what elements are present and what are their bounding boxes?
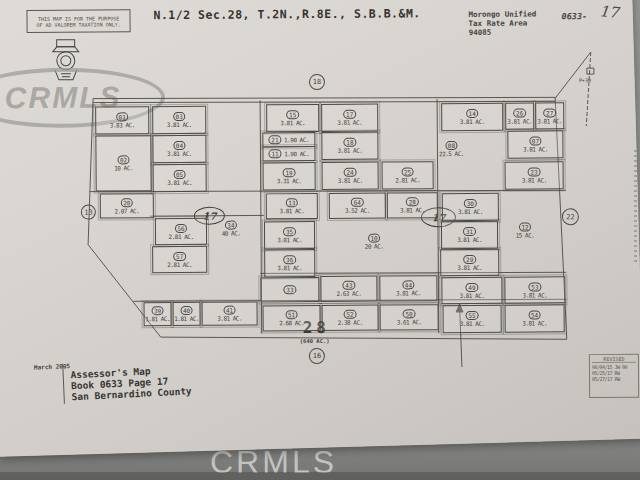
- parcel-30: 303.81 AC.: [442, 193, 499, 221]
- parcel-acreage: 2.63 AC.: [336, 291, 361, 297]
- parcel-number: 21: [269, 135, 281, 144]
- parcel-acreage: 22.5 AC.: [439, 151, 464, 157]
- photo-of-assessor-map: { "watermark": { "text": "CRMLS" }, "hea…: [0, 0, 640, 480]
- parcel-acreage: 3.81 AC.: [400, 207, 425, 213]
- parcel-23: 233.81 AC.: [505, 161, 564, 189]
- parcel-17: 173.81 AC.: [321, 104, 378, 132]
- parcel-number: 52: [344, 310, 356, 319]
- parcel-acreage: 3.31 AC.: [277, 178, 302, 184]
- parcel-51: 512.68 AC.: [263, 305, 321, 331]
- parcel-acreage: 1.90 AC.: [284, 137, 309, 143]
- parcel-54: 543.81 AC.: [505, 304, 565, 332]
- parcel-10: 1020 AC.: [352, 231, 396, 251]
- parcel-39: 391.81 AC.: [143, 302, 171, 326]
- parcel-acreage: 3.81 AC.: [523, 146, 548, 152]
- parcel-acreage: 2.38 AC.: [338, 320, 363, 326]
- parcel-56: 562.81 AC.: [155, 218, 207, 245]
- parcel-number: 10: [368, 234, 380, 243]
- parcel-number: 43: [343, 281, 355, 290]
- parcel-acreage: 1.81 AC.: [145, 316, 170, 322]
- parcel-26: 263.81 AC.: [505, 103, 534, 130]
- parcel-03: 033.81 AC.: [152, 106, 206, 134]
- parcel-acreage: 3.81 AC.: [460, 321, 485, 327]
- parcel-acreage: 1.81 AC.: [174, 316, 199, 322]
- parcel-acreage: 3.81 AC.: [279, 208, 304, 214]
- parcel-41: 413.81 AC.: [201, 301, 257, 325]
- parcel-acreage: 20 AC.: [365, 244, 384, 250]
- parcel-number: 44: [402, 280, 414, 289]
- parcel-64: 643.52 AC.: [329, 193, 386, 219]
- parcel-acreage: 3.81 AC.: [277, 265, 302, 271]
- parcel-number: 03: [173, 112, 185, 121]
- parcel-07: 073.81 AC.: [507, 130, 563, 158]
- parcel-acreage: 3.81 AC.: [396, 290, 421, 296]
- parcel-04: 043.81 AC.: [152, 135, 206, 163]
- parcel-12: 1215 AC.: [503, 220, 547, 240]
- parcel-08: 0822.5 AC.: [429, 139, 473, 159]
- parcel-36: 363.81 AC.: [264, 249, 315, 277]
- parcel-number: 24: [344, 168, 356, 177]
- parcel-acreage: 10 AC.: [114, 165, 133, 171]
- parcel-number: 18: [344, 138, 356, 147]
- parcel-number: 51: [285, 310, 297, 319]
- parcel-11: 111.90 AC.: [262, 146, 315, 161]
- parcel-number: 12: [519, 223, 531, 232]
- parcel-acreage: 2.68 AC.: [279, 320, 304, 326]
- parcel-number: 26: [514, 108, 526, 117]
- parcel-acreage: 3.81 AC.: [537, 118, 562, 124]
- parcel-25: 252.81 AC.: [382, 161, 434, 189]
- parcel-number: 13: [286, 198, 298, 207]
- parcel-acreage: 3.81 AC.: [458, 209, 483, 215]
- parcel-28: 283.81 AC.: [387, 192, 438, 218]
- parcel-number: 31: [463, 227, 475, 236]
- parcel-33: 33: [260, 277, 319, 302]
- parcel-number: 19: [283, 168, 295, 177]
- parcel-number: 07: [529, 136, 541, 145]
- parcel-acreage: 3.81 AC.: [167, 122, 192, 128]
- parcel-number: 39: [151, 306, 163, 315]
- parcel-number: 08: [445, 141, 457, 150]
- parcel-52: 522.38 AC.: [322, 305, 379, 331]
- parcel-number: 36: [284, 255, 296, 264]
- parcel-acreage: 15 AC.: [516, 233, 535, 239]
- parcel-50: 503.61 AC.: [380, 304, 439, 330]
- parcel-27: 273.81 AC.: [535, 102, 564, 129]
- parcel-13: 133.81 AC.: [266, 193, 318, 219]
- parcel-acreage: 3.81 AC.: [167, 180, 192, 186]
- parcel-acreage: 3.81 AC.: [337, 148, 362, 154]
- parcel-number: 05: [173, 170, 185, 179]
- parcel-acreage: 3.81 AC.: [338, 178, 363, 184]
- parcel-02: 0210 AC.: [95, 135, 151, 191]
- parcel-acreage: 3.81 AC.: [522, 177, 547, 183]
- parcel-number: 30: [464, 199, 476, 208]
- parcel-number: 54: [528, 310, 540, 319]
- parcel-acreage: 3.81 AC.: [277, 237, 302, 243]
- parcel-number: 55: [466, 311, 478, 320]
- parcel-number: 27: [544, 108, 556, 117]
- parcel-49: 493.81 AC.: [441, 277, 502, 304]
- parcel-14: 143.81 AC.: [441, 103, 503, 131]
- parcel-15: 153.81 AC.: [266, 104, 319, 132]
- parcel-number: 02: [117, 155, 129, 164]
- parcel-number: 28: [406, 197, 418, 206]
- parcel-acreage: 2.81 AC.: [167, 261, 192, 267]
- parcel-number: 20: [121, 198, 133, 207]
- parcel-40: 401.81 AC.: [172, 302, 200, 326]
- parcel-acreage: 2.81 AC.: [395, 177, 420, 183]
- parcel-number: 41: [223, 306, 235, 315]
- map-document-content: CRMLS THIS MAP IS FOR THE PURPOSE OF AD …: [0, 0, 640, 480]
- parcel-number: 40: [180, 306, 192, 315]
- parcel-acreage: 3.52 AC.: [345, 208, 370, 214]
- edge-artifact: [634, 150, 637, 265]
- parcel-29: 293.81 AC.: [440, 249, 499, 276]
- parcel-acreage: 3.81 AC.: [457, 264, 482, 270]
- photo-bottom-shadow: [0, 472, 640, 480]
- parcel-number: 11: [269, 149, 281, 158]
- parcel-31: 313.81 AC.: [441, 221, 498, 249]
- parcel-acreage: 3.81 AC.: [457, 237, 482, 243]
- parcel-acreage: 3.81 AC.: [459, 292, 484, 298]
- parcel-05: 053.81 AC.: [153, 164, 207, 192]
- parcel-acreage: 3.61 AC.: [397, 319, 422, 325]
- parcel-layer: 013.83 AC.033.81 AC.0210 AC.043.81 AC.05…: [0, 0, 640, 480]
- parcel-acreage: 3.81 AC.: [167, 151, 192, 157]
- parcel-44: 443.81 AC.: [379, 275, 437, 301]
- parcel-number: 04: [173, 141, 185, 150]
- parcel-number: 56: [175, 223, 187, 232]
- parcel-number: 57: [174, 251, 186, 260]
- parcel-number: 01: [116, 112, 128, 121]
- parcel-number: 25: [401, 167, 413, 176]
- parcel-number: 15: [287, 110, 299, 119]
- parcel-acreage: 2.07 AC.: [114, 208, 139, 214]
- parcel-acreage: 3.81 AC.: [337, 120, 362, 126]
- parcel-acreage: 3.81 AC.: [280, 120, 305, 126]
- parcel-number: 35: [283, 227, 295, 236]
- parcel-acreage: 3.81 AC.: [507, 118, 532, 124]
- parcel-number: 64: [351, 198, 363, 207]
- parcel-number: 49: [466, 282, 478, 291]
- parcel-35: 353.81 AC.: [264, 221, 315, 249]
- parcel-number: 29: [464, 254, 476, 263]
- parcel-34: 3440 AC.: [210, 218, 252, 238]
- parcel-24: 243.81 AC.: [322, 162, 379, 190]
- parcel-acreage: 3.81 AC.: [522, 292, 547, 298]
- parcel-acreage: 40 AC.: [222, 231, 241, 237]
- parcel-number: 53: [529, 282, 541, 291]
- parcel-19: 193.31 AC.: [263, 162, 316, 190]
- parcel-number: 17: [344, 110, 356, 119]
- parcel-43: 432.63 AC.: [320, 276, 377, 302]
- parcel-53: 533.81 AC.: [504, 276, 565, 303]
- parcel-01: 013.83 AC.: [95, 106, 149, 134]
- parcel-acreage: 2.81 AC.: [169, 233, 194, 239]
- parcel-20: 202.07 AC.: [100, 193, 154, 218]
- parcel-number: 14: [466, 109, 478, 118]
- parcel-acreage: 3.81 AC.: [217, 316, 242, 322]
- parcel-acreage: 3.81 AC.: [460, 119, 485, 125]
- parcel-18: 183.81 AC.: [321, 132, 378, 160]
- parcel-acreage: 1.90 AC.: [284, 151, 309, 157]
- parcel-55: 553.81 AC.: [443, 305, 502, 333]
- parcel-number: 50: [403, 309, 415, 318]
- parcel-57: 572.81 AC.: [152, 246, 207, 273]
- parcel-number: 33: [284, 285, 296, 294]
- parcel-number: 23: [528, 167, 540, 176]
- parcel-number: 34: [225, 221, 237, 230]
- parcel-acreage: 3.83 AC.: [110, 122, 135, 128]
- parcel-acreage: 3.81 AC.: [522, 320, 547, 326]
